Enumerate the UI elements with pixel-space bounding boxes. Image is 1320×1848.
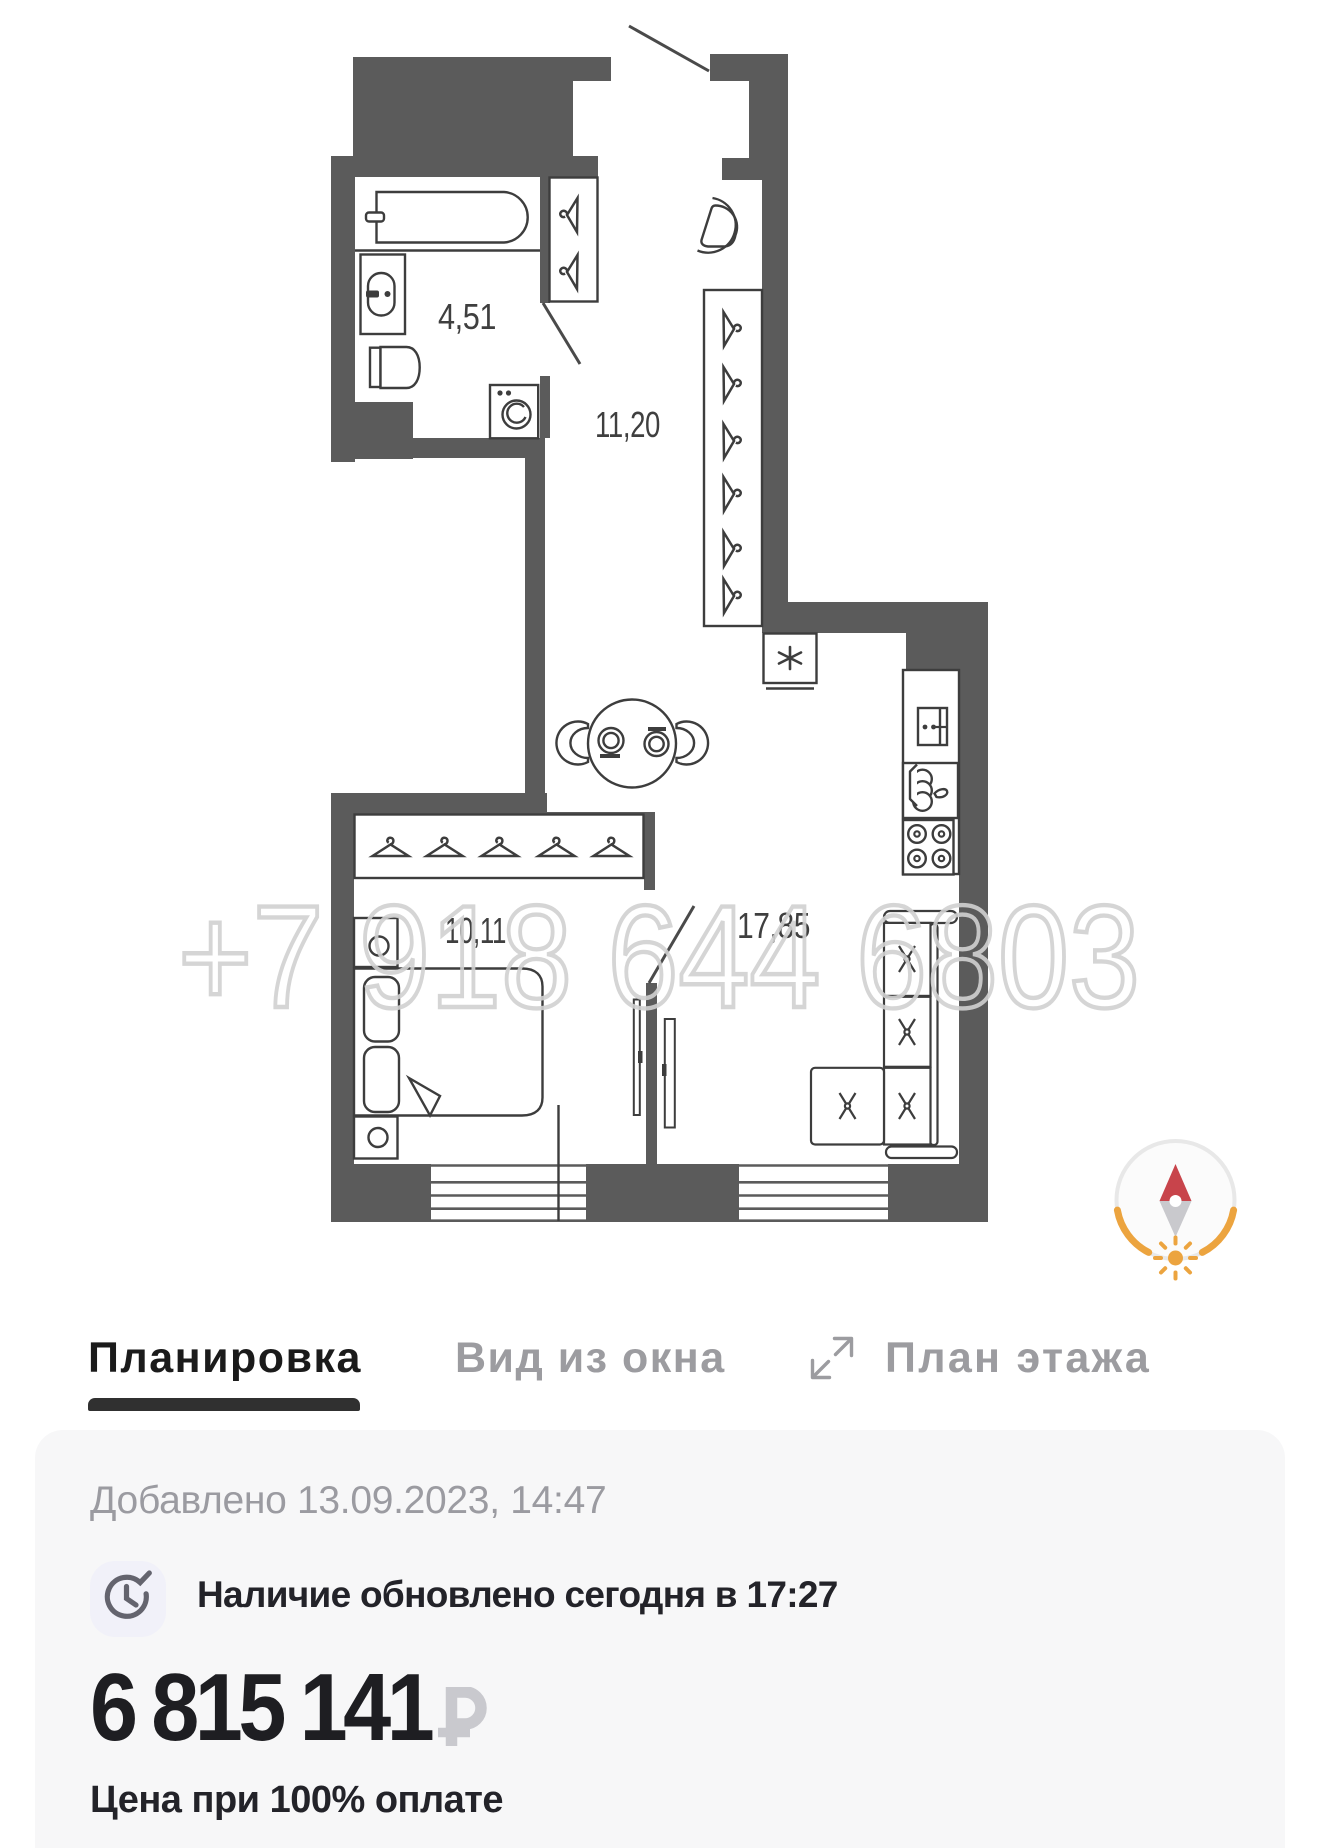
svg-text:11,20: 11,20 — [595, 404, 660, 445]
svg-text:+7 918 644 6803: +7 918 644 6803 — [178, 875, 1140, 1038]
svg-text:4,51: 4,51 — [438, 296, 496, 337]
